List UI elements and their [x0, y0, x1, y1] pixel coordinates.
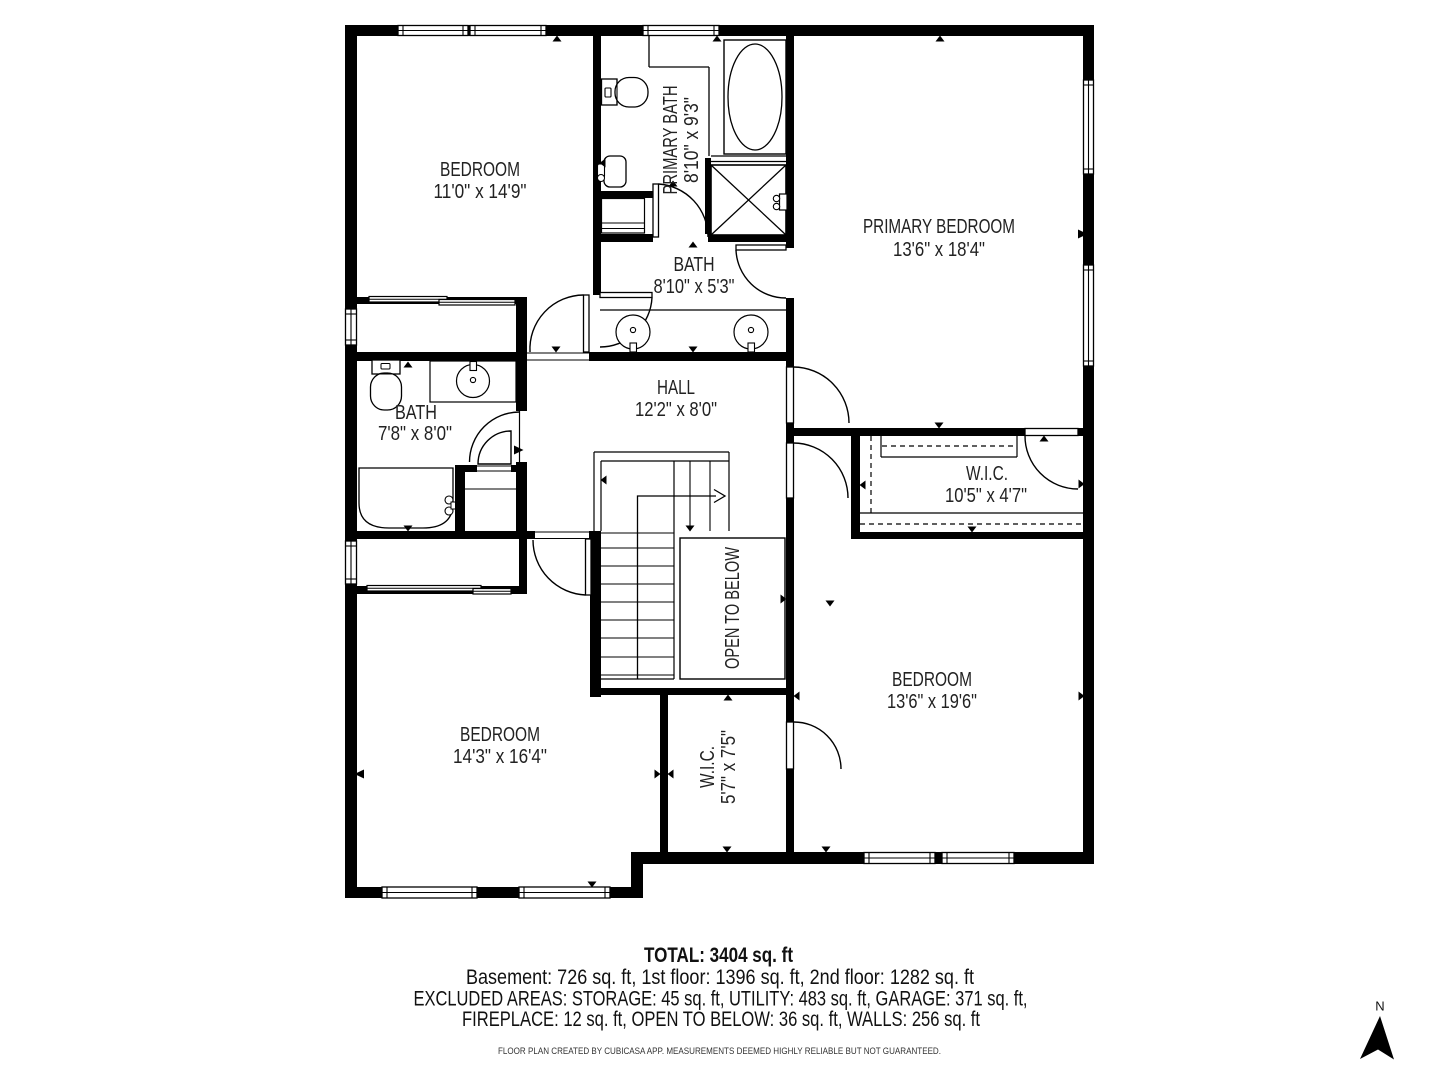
svg-text:Basement: 726 sq. ft, 1st floo: Basement: 726 sq. ft, 1st floor: 1396 sq… — [466, 966, 974, 989]
svg-text:BEDROOM: BEDROOM — [440, 159, 520, 181]
svg-text:FIREPLACE: 12 sq. ft, OPEN TO: FIREPLACE: 12 sq. ft, OPEN TO BELOW: 36 … — [462, 1008, 980, 1031]
svg-text:8'10" x 5'3": 8'10" x 5'3" — [654, 276, 735, 298]
svg-text:N: N — [1375, 999, 1384, 1014]
svg-text:BATH: BATH — [674, 254, 715, 276]
svg-text:13'6" x 18'4": 13'6" x 18'4" — [893, 239, 985, 261]
svg-text:12'2" x 8'0": 12'2" x 8'0" — [635, 399, 717, 421]
svg-text:14'3" x 16'4": 14'3" x 16'4" — [453, 746, 547, 768]
svg-text:BATH: BATH — [395, 402, 437, 424]
svg-text:OPEN TO BELOW: OPEN TO BELOW — [722, 547, 744, 669]
svg-text:5'7" x 7'5": 5'7" x 7'5" — [718, 730, 740, 804]
svg-text:7'8" x 8'0": 7'8" x 8'0" — [378, 423, 452, 445]
svg-text:W.I.C.: W.I.C. — [966, 463, 1008, 485]
svg-text:HALL: HALL — [657, 377, 695, 399]
svg-text:13'6" x 19'6": 13'6" x 19'6" — [887, 691, 977, 713]
svg-text:PRIMARY BATH: PRIMARY BATH — [660, 86, 682, 195]
svg-text:BEDROOM: BEDROOM — [892, 669, 972, 691]
svg-text:W.I.C.: W.I.C. — [697, 746, 719, 788]
svg-text:TOTAL: 3404 sq. ft: TOTAL: 3404 sq. ft — [644, 944, 793, 967]
svg-text:FLOOR PLAN CREATED BY CUBICASA: FLOOR PLAN CREATED BY CUBICASA APP. MEAS… — [498, 1046, 941, 1057]
svg-text:BEDROOM: BEDROOM — [460, 724, 540, 746]
svg-text:11'0" x 14'9": 11'0" x 14'9" — [434, 181, 527, 203]
svg-text:PRIMARY BEDROOM: PRIMARY BEDROOM — [863, 216, 1015, 238]
svg-text:8'10" x 9'3": 8'10" x 9'3" — [681, 97, 703, 183]
svg-text:10'5" x 4'7": 10'5" x 4'7" — [945, 485, 1027, 507]
